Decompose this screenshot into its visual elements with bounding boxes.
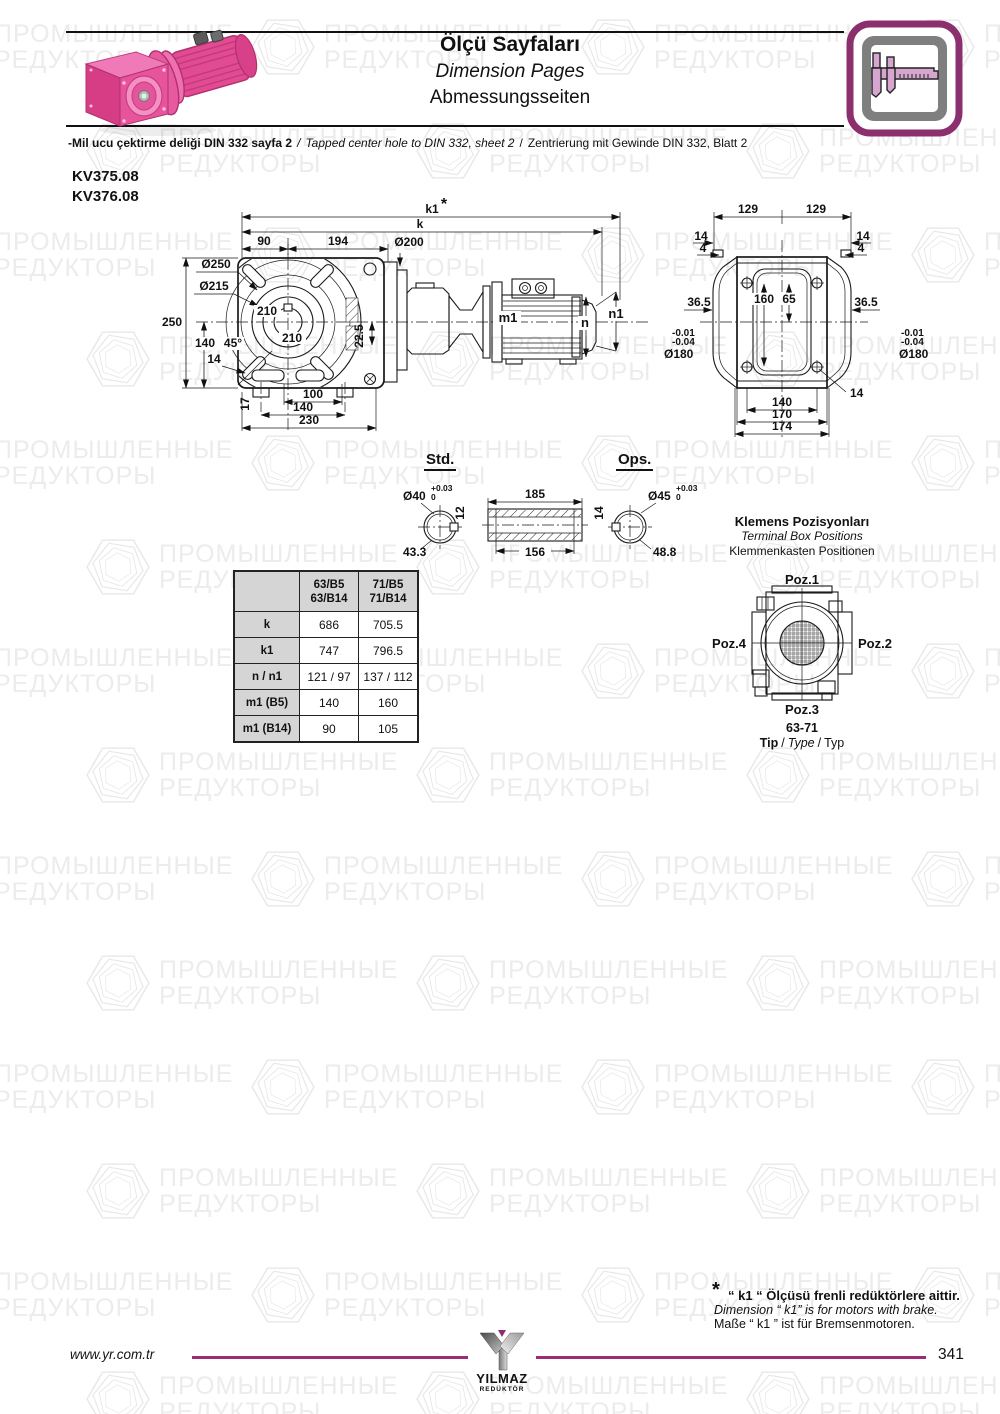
dim-label-129a: 129: [738, 202, 758, 216]
watermark: ПРОМЫШЛЕННЫЕРЕДУКТОРЫ: [250, 1262, 563, 1328]
dim-label-160: 160: [754, 292, 774, 306]
catalog-page: ПРОМЫШЛЕННЫЕРЕДУКТОРЫПРОМЫШЛЕННЫЕРЕДУКТО…: [0, 0, 1000, 1414]
dim-label-dia180l: Ø180: [664, 347, 694, 361]
table-row: k 686 705.5: [234, 612, 418, 638]
dim-label-ops-dia: Ø45: [648, 489, 671, 503]
dim-label-36-5r: 36.5: [854, 295, 878, 309]
watermark-logo: [745, 1366, 811, 1414]
watermark-logo: [745, 1158, 811, 1224]
watermark: ПРОМЫШЛЕННЫЕРЕДУКТОРЫ: [85, 950, 398, 1016]
dim-label-100: 100: [303, 387, 323, 401]
watermark-logo: [250, 1262, 316, 1328]
yilmaz-logo-subtext: REDÜKTÖR: [460, 1386, 544, 1393]
watermark-text: ПРОМЫШЛЕННЫЕРЕДУКТОРЫ: [159, 1373, 398, 1414]
watermark: ПРОМЫШЛЕННЫЕРЕДУКТОРЫ: [250, 1054, 563, 1120]
dim-label-ops-key: 14: [592, 506, 606, 520]
watermark: ПРОМЫШЛЕННЫЕРЕДУКТОРЫ: [745, 1366, 1000, 1414]
ops-section-label: Ops.: [616, 451, 653, 471]
watermark-text: ПРОМЫШЛЕННЫЕРЕДУКТОРЫ: [159, 1165, 398, 1217]
watermark-logo: [415, 950, 481, 1016]
watermark: ПРОМЫШЛЕННЫЕРЕДУКТОРЫ: [745, 950, 1000, 1016]
dim-label-140: 140: [195, 336, 215, 350]
poz3-label: Poz.3: [785, 702, 819, 717]
dim-label-156: 156: [525, 545, 545, 559]
footnote-star: *: [712, 1279, 720, 1302]
watermark-logo: [745, 950, 811, 1016]
watermark: ПРОМЫШЛЕННЫЕРЕДУКТОРЫ: [415, 950, 728, 1016]
dim-label-n: n: [581, 315, 589, 330]
watermark-text: ПРОМЫШЛЕННЫЕРЕДУКТОРЫ: [324, 1269, 563, 1321]
watermark: ПРОМЫШЛЕННЫЕРЕДУКТОРЫ: [910, 846, 1000, 912]
dim-label-140b: 140: [293, 400, 313, 414]
poz4-label: Poz.4: [712, 636, 747, 651]
watermark-text: ПРОМЫШЛЕННЫЕРЕДУКТОРЫ: [0, 853, 233, 905]
dim-label-210b: 210: [282, 331, 302, 345]
dim-label-174: 174: [772, 419, 792, 433]
rear-view-drawing: 129 129 14 4 14 4 36.5 36.5 160 65 -0.01: [664, 202, 929, 440]
watermark-text: ПРОМЫШЛЕННЫЕРЕДУКТОРЫ: [0, 1269, 233, 1321]
watermark-logo: [250, 1054, 316, 1120]
yilmaz-logo-text: YILMAZ: [460, 1371, 544, 1386]
dimension-table: 63/B563/B14 71/B571/B14 k 686 705.5 k1 7…: [233, 570, 419, 743]
dim-label-4r: 4: [858, 241, 865, 255]
watermark-text: ПРОМЫШЛЕННЫЕРЕДУКТОРЫ: [819, 1373, 1000, 1414]
watermark-logo: [910, 1054, 976, 1120]
dim-label-m1: m1: [499, 310, 518, 325]
watermark: ПРОМЫШЛЕННЫЕРЕДУКТОРЫ: [85, 1158, 398, 1224]
dim-label-90: 90: [257, 234, 271, 248]
dim-label-std-tolz: 0: [431, 492, 436, 502]
dim-label-k: k: [417, 217, 424, 231]
watermark: ПРОМЫШЛЕННЫЕРЕДУКТОРЫ: [580, 1054, 893, 1120]
dim-label-45deg: 45°: [224, 336, 242, 350]
watermark-logo: [85, 1158, 151, 1224]
table-col-63: 63/B563/B14: [300, 571, 359, 612]
watermark-text: ПРОМЫШЛЕННЫЕРЕДУКТОРЫ: [654, 853, 893, 905]
dim-label-k1: k1: [425, 202, 439, 216]
table-row: m1 (B14) 90 105: [234, 716, 418, 743]
watermark: ПРОМЫШЛЕННЫЕРЕДУКТОРЫ: [0, 1262, 233, 1328]
technical-drawings: * k1 k 90 194 Ø200 Ø250 Ø215 250 140 45°…: [0, 0, 1000, 780]
watermark-logo: [85, 950, 151, 1016]
watermark-logo: [580, 846, 646, 912]
watermark-logo: [415, 1158, 481, 1224]
dim-label-14hole: 14: [850, 386, 864, 400]
motor-type-range: 63-71: [762, 721, 842, 735]
page-number: 341: [938, 1346, 964, 1364]
std-section-label: Std.: [424, 451, 456, 471]
dim-label-std-key: 12: [453, 506, 467, 520]
dim-label-dia200: Ø200: [394, 235, 424, 249]
dim-label-230: 230: [299, 413, 319, 427]
watermark-text: ПРОМЫШЛЕННЫЕРЕДУКТОРЫ: [489, 957, 728, 1009]
watermark-logo: [85, 1366, 151, 1414]
watermark-text: ПРОМЫШЛЕННЫЕРЕДУКТОРЫ: [819, 1165, 1000, 1217]
shaft-section-std: Ø40 +0.03 0 12 43.3: [403, 483, 467, 559]
watermark: ПРОМЫШЛЕННЫЕРЕДУКТОРЫ: [0, 1054, 233, 1120]
table-row: m1 (B5) 140 160: [234, 690, 418, 716]
watermark: ПРОМЫШЛЕННЫЕРЕДУКТОРЫ: [745, 1158, 1000, 1224]
table-corner-cell: [234, 571, 300, 612]
table-header-row: 63/B563/B14 71/B571/B14: [234, 571, 418, 612]
watermark-logo: [910, 846, 976, 912]
poz1-label: Poz.1: [785, 572, 819, 587]
shaft-section-ops: Ø45 +0.03 0 14 48.8: [592, 483, 698, 559]
watermark: ПРОМЫШЛЕННЫЕРЕДУКТОРЫ: [0, 846, 233, 912]
watermark-text: ПРОМЫШЛЕННЫЕРЕДУКТОРЫ: [819, 957, 1000, 1009]
dim-label-36-5l: 36.5: [687, 295, 711, 309]
dim-label-65: 65: [782, 292, 796, 306]
watermark: ПРОМЫШЛЕННЫЕРЕДУКТОРЫ: [415, 1158, 728, 1224]
watermark-text: ПРОМЫШЛЕННЫЕРЕДУКТОРЫ: [654, 1061, 893, 1113]
dim-label-std-dia: Ø40: [403, 489, 426, 503]
watermark: ПРОМЫШЛЕННЫЕРЕДУКТОРЫ: [910, 1054, 1000, 1120]
watermark-text: ПРОМЫШЛЕННЫЕРЕДУКТОРЫ: [984, 853, 1000, 905]
footnote-tr: “ k1 “ Ölçüsü frenli redüktörlere aittir…: [728, 1288, 960, 1303]
watermark-logo: [250, 846, 316, 912]
dim-label-dia215: Ø215: [199, 279, 229, 293]
front-view-drawing: * k1 k 90 194 Ø200 Ø250 Ø215 250 140 45°…: [162, 196, 648, 432]
watermark-text: ПРОМЫШЛЕННЫЕРЕДУКТОРЫ: [324, 1061, 563, 1113]
table-row: k1 747 796.5: [234, 638, 418, 664]
watermark-text: ПРОМЫШЛЕННЫЕРЕДУКТОРЫ: [984, 1269, 1000, 1321]
website-link[interactable]: www.yr.com.tr: [70, 1347, 154, 1362]
type-caption: Tip/Type/Typ: [735, 736, 869, 750]
dim-label-4l: 4: [700, 241, 707, 255]
table-col-71: 71/B571/B14: [359, 571, 419, 612]
watermark-text: ПРОМЫШЛЕННЫЕРЕДУКТОРЫ: [0, 1061, 233, 1113]
dim-label-n1: n1: [608, 306, 623, 321]
dim-label-194: 194: [328, 234, 348, 248]
dim-label-ops-flat: 48.8: [653, 545, 677, 559]
footnote-de: Maße “ k1 ” ist für Bremsenmotoren.: [714, 1317, 915, 1331]
watermark: ПРОМЫШЛЕННЫЕРЕДУКТОРЫ: [580, 846, 893, 912]
table-row: n / n1 121 / 97 137 / 112: [234, 664, 418, 690]
dim-label-17: 17: [238, 397, 252, 411]
watermark-text: ПРОМЫШЛЕННЫЕРЕДУКТОРЫ: [489, 1165, 728, 1217]
dim-label-star: *: [441, 196, 448, 213]
footer-rule-right: [536, 1356, 926, 1359]
dim-label-250: 250: [162, 315, 182, 329]
watermark-logo: [580, 1262, 646, 1328]
terminal-box-drawing: Poz.1 Poz.2 Poz.3 Poz.4: [712, 572, 892, 717]
watermark: ПРОМЫШЛЕННЫЕРЕДУКТОРЫ: [250, 846, 563, 912]
footer-rule-left: [192, 1356, 468, 1359]
watermark-text: ПРОМЫШЛЕННЫЕРЕДУКТОРЫ: [324, 853, 563, 905]
poz2-label: Poz.2: [858, 636, 892, 651]
footnote-en: Dimension “ k1” is for motors with brake…: [714, 1303, 938, 1317]
dim-label-185: 185: [525, 487, 545, 501]
dim-label-ops-tolz: 0: [676, 492, 681, 502]
dim-label-129b: 129: [806, 202, 826, 216]
dim-label-14: 14: [207, 352, 221, 366]
watermark-text: ПРОМЫШЛЕННЫЕРЕДУКТОРЫ: [159, 957, 398, 1009]
dim-label-210a: 210: [257, 304, 277, 318]
dim-label-dia250: Ø250: [201, 257, 231, 271]
watermark: ПРОМЫШЛЕННЫЕРЕДУКТОРЫ: [85, 1366, 398, 1414]
watermark-logo: [580, 1054, 646, 1120]
dim-label-22-5: 22.5: [352, 324, 366, 348]
dim-label-dia180r: Ø180: [899, 347, 929, 361]
terminal-box-title: Klemens Pozisyonları Terminal Box Positi…: [692, 514, 912, 559]
yilmaz-logo: [478, 1330, 526, 1372]
watermark-text: ПРОМЫШЛЕННЫЕРЕДУКТОРЫ: [984, 1061, 1000, 1113]
shaft-section-mid: 185 156: [482, 487, 588, 559]
